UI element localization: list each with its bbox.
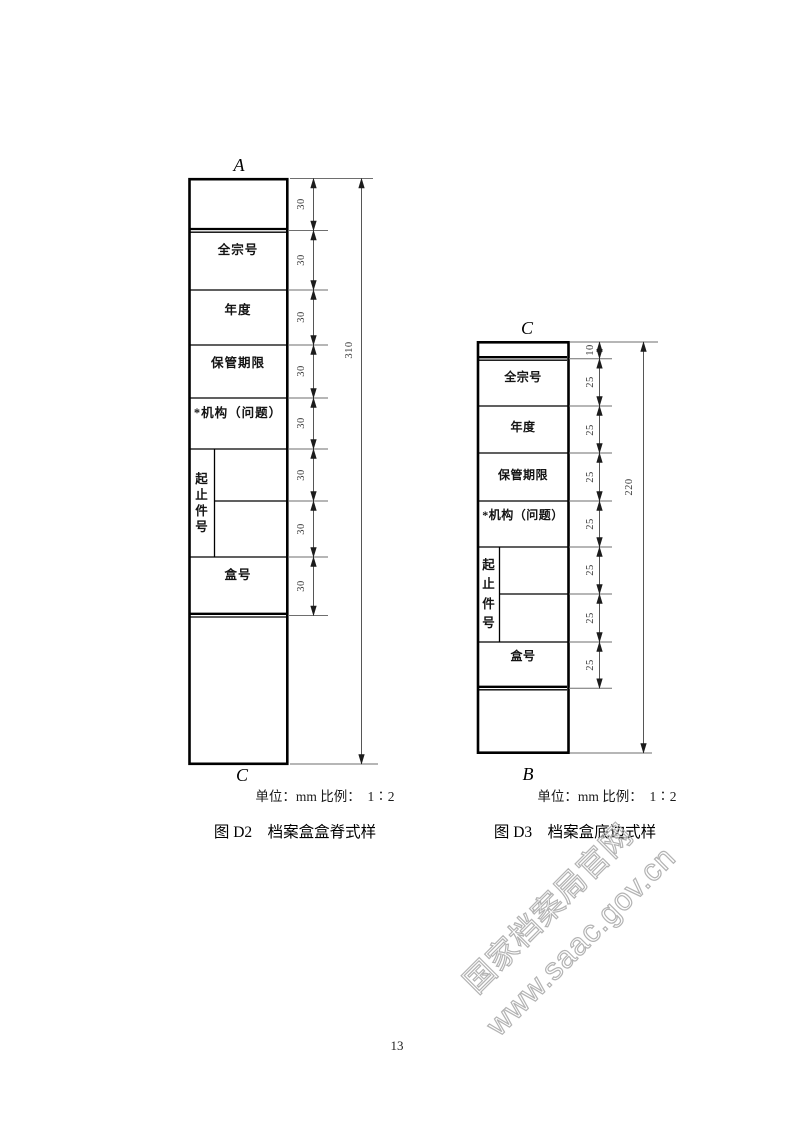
vertical-char: 止	[482, 575, 495, 595]
dim-label: 25	[584, 507, 598, 541]
dim-label: 30	[295, 354, 309, 388]
page-number: 13	[0, 1038, 794, 1054]
cell-organization-issue: *机构（问题）	[189, 405, 287, 421]
dim-label: 30	[295, 300, 309, 334]
point-label-b: B	[506, 764, 550, 784]
dim-label: 25	[584, 648, 598, 682]
dim-label: 25	[584, 413, 598, 447]
cell-start-end-item-number: 起 止 件 号	[478, 547, 499, 642]
dim-label: 30	[295, 569, 309, 603]
vertical-char: 件	[195, 503, 208, 519]
figure-d2-linework	[190, 179, 379, 765]
point-label-c: C	[505, 318, 549, 338]
unit-scale-note: 单位：mm 比例： 1∶2	[497, 789, 717, 805]
dim-label: 25	[584, 601, 598, 635]
vertical-char: 号	[195, 519, 208, 535]
cell-retention-period: 保管期限	[478, 467, 568, 483]
unit-scale-note: 单位：mm 比例： 1∶2	[215, 789, 435, 805]
document-page: A C 全宗号 年度 保管期限 *机构（问题） 盒号 起 止 件 号 30 30…	[0, 0, 794, 1123]
cell-start-end-item-number: 起 止 件 号	[189, 449, 214, 557]
dim-total-label: 310	[343, 333, 357, 367]
dim-label: 30	[295, 512, 309, 546]
point-label-c: C	[220, 765, 264, 785]
dim-label: 30	[295, 406, 309, 440]
cell-organization-issue: *机构（问题）	[478, 507, 568, 523]
dim-label: 25	[584, 365, 598, 399]
dim-label: 25	[584, 460, 598, 494]
cell-year: 年度	[189, 302, 287, 318]
cell-fonds-number: 全宗号	[478, 369, 568, 385]
vertical-char: 起	[195, 471, 208, 487]
cell-retention-period: 保管期限	[189, 355, 287, 371]
figure-caption-d2: 图 D2 档案盒盒脊式样	[185, 824, 405, 842]
dim-label: 25	[584, 553, 598, 587]
dim-total-label: 220	[623, 470, 637, 504]
cell-box-number: 盒号	[478, 648, 568, 664]
vertical-char: 止	[195, 487, 208, 503]
dim-label: 30	[295, 187, 309, 221]
dim-label: 30	[295, 243, 309, 277]
vertical-char: 号	[482, 614, 495, 634]
cell-box-number: 盒号	[189, 567, 287, 583]
figure-d3-linework	[478, 342, 658, 753]
vertical-char: 起	[482, 556, 495, 576]
cell-fonds-number: 全宗号	[189, 242, 287, 258]
vertical-char: 件	[482, 595, 495, 615]
dim-label: 30	[295, 458, 309, 492]
cell-year: 年度	[478, 419, 568, 435]
point-label-a: A	[217, 155, 261, 175]
dim-label: 10	[584, 333, 598, 367]
diagram-linework	[0, 0, 794, 1123]
